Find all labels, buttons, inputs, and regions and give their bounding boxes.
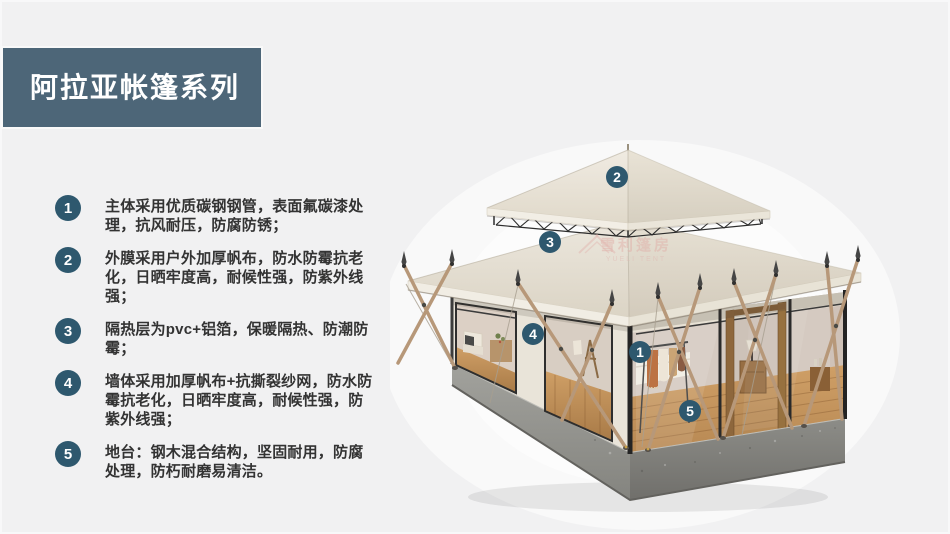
feature-item-5: 5 地台：钢木混合结构，坚固耐用，防腐处理，防朽耐磨易清洁。 — [55, 443, 375, 481]
image-marker-1: 1 — [629, 341, 651, 363]
feature-number-badge: 3 — [55, 318, 81, 344]
image-marker-2: 2 — [606, 166, 628, 188]
tent-illustration — [390, 135, 900, 530]
title-banner: 阿拉亚帐篷系列 — [3, 48, 261, 127]
feature-text: 主体采用优质碳钢钢管，表面氟碳漆处理，抗风耐压，防腐防锈； — [105, 197, 373, 235]
image-marker-5: 5 — [679, 400, 701, 422]
slide-background: { "banner": { "title": "阿拉亚帐篷系列", "bg_co… — [0, 0, 950, 534]
feature-item-3: 3 隔热层为pvc+铝箔，保暖隔热、防潮防霉； — [55, 320, 375, 358]
feature-text: 地台：钢木混合结构，坚固耐用，防腐处理，防朽耐磨易清洁。 — [105, 443, 373, 481]
feature-list: 1 主体采用优质碳钢钢管，表面氟碳漆处理，抗风耐压，防腐防锈； 2 外膜采用户外… — [55, 197, 375, 495]
feature-text: 外膜采用户外加厚帆布，防水防霉抗老化，日晒牢度高，耐候性强，防紫外线强； — [105, 249, 373, 306]
feature-number-badge: 5 — [55, 441, 81, 467]
page-title: 阿拉亚帐篷系列 — [30, 74, 240, 102]
feature-item-1: 1 主体采用优质碳钢钢管，表面氟碳漆处理，抗风耐压，防腐防锈； — [55, 197, 375, 235]
feature-text: 隔热层为pvc+铝箔，保暖隔热、防潮防霉； — [105, 320, 373, 358]
image-marker-4: 4 — [522, 323, 544, 345]
feature-number-badge: 1 — [55, 195, 81, 221]
feature-text: 墙体采用加厚帆布+抗撕裂纱网，防水防霉抗老化，日晒牢度高，耐候性强，防紫外线强； — [105, 372, 373, 429]
feature-item-4: 4 墙体采用加厚帆布+抗撕裂纱网，防水防霉抗老化，日晒牢度高，耐候性强，防紫外线… — [55, 372, 375, 429]
feature-number-badge: 2 — [55, 247, 81, 273]
feature-item-2: 2 外膜采用户外加厚帆布，防水防霉抗老化，日晒牢度高，耐候性强，防紫外线强； — [55, 249, 375, 306]
feature-number-badge: 4 — [55, 370, 81, 396]
tent-image: 雪利篷房 YUELI TENT 1 2 3 4 5 — [390, 135, 900, 530]
image-marker-3: 3 — [539, 231, 561, 253]
